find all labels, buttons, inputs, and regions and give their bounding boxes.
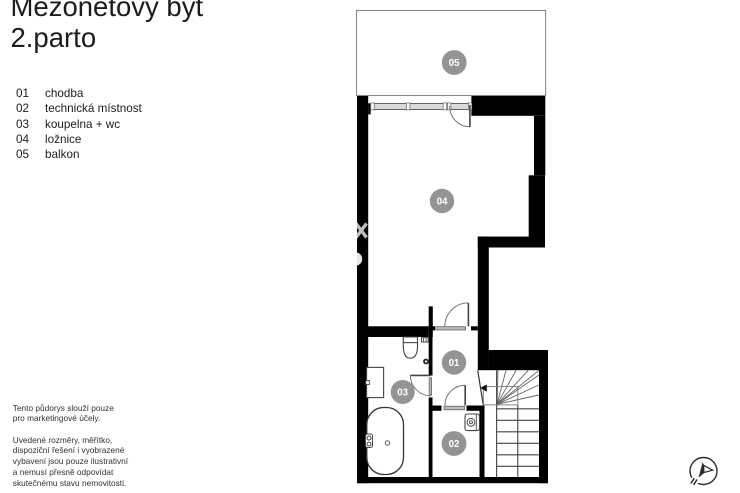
svg-text:02: 02 [449, 439, 460, 450]
svg-text:05: 05 [449, 58, 460, 69]
svg-text:04: 04 [437, 197, 448, 208]
svg-text:03: 03 [397, 388, 408, 399]
svg-text:01: 01 [449, 358, 460, 369]
